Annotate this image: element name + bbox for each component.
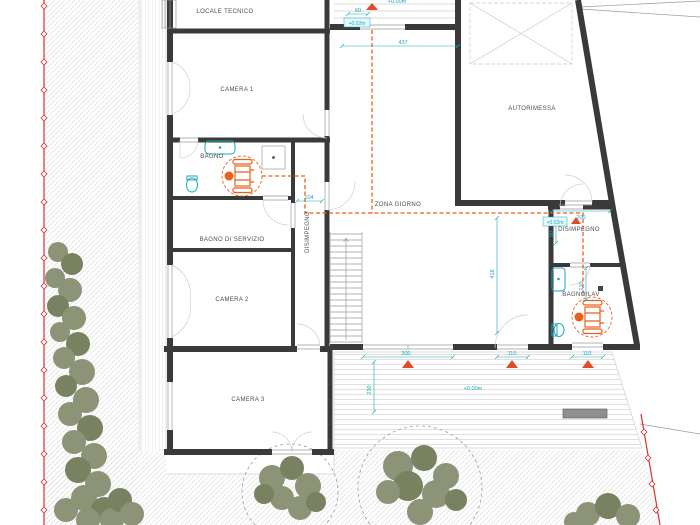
floor-plan-page: LOCALE TECNICO CAMERA 1 BAGNO BAGNO DI S… — [0, 0, 700, 525]
room-label-bagno: BAGNO — [200, 154, 223, 160]
level-tag-terrace: +0.00m — [464, 386, 483, 392]
garage-cross-marking — [470, 3, 572, 64]
terrace-step — [563, 409, 607, 418]
dim-terrace-window-2: 110 — [583, 351, 592, 357]
accessibility-path — [262, 30, 583, 296]
room-label-bagno-di-servizio: BAGNO DI SERVIZIO — [200, 237, 265, 243]
dim-living-width: 437 — [398, 40, 407, 46]
room-label-zona-giorno: ZONA GIORNO — [375, 202, 421, 208]
level-tag-top: +0.00m — [388, 0, 407, 5]
terrace-deck — [334, 352, 642, 448]
dim-terrace-door: 300 — [401, 351, 410, 357]
room-label-camera-2: CAMERA 2 — [215, 297, 248, 303]
room-label-autorimessa: AUTORIMESSA — [508, 106, 555, 112]
floor-plan-canvas: LOCALE TECNICO CAMERA 1 BAGNO BAGNO DI S… — [0, 0, 700, 525]
room-label-camera-3: CAMERA 3 — [231, 397, 264, 403]
stairs — [330, 232, 362, 343]
room-label-disimpegno-hall: DISIMPEGNO — [305, 211, 311, 253]
dim-living-depth: 418 — [490, 269, 496, 278]
dim-bagno-lav-width: 120 — [579, 281, 585, 290]
dim-disimpegno-width: 50 — [549, 231, 555, 237]
drain — [598, 286, 603, 291]
dim-garage-opening: 200 — [576, 215, 585, 221]
dim-terrace-depth: 230 — [367, 385, 373, 394]
room-label-camera-1: CAMERA 1 — [220, 87, 253, 93]
dim-terrace-window-1: 110 — [508, 351, 517, 357]
room-label-bagno-lav: BAGNO/LAV — [562, 292, 599, 298]
dim-entry-door: 60 — [355, 8, 361, 14]
level-tag-landing: +0.02m — [547, 220, 564, 226]
wheelchair-symbol-bagno-lav — [572, 297, 612, 337]
wheelchair-symbol-bagno — [222, 156, 262, 196]
toilet-bagno-lav — [554, 324, 564, 337]
room-label-locale-tecnico: LOCALE TECNICO — [196, 9, 253, 15]
room-label-disimpegno: DISIMPEGNO — [558, 227, 600, 233]
level-tag-entry: +0.02m — [349, 21, 366, 27]
dim-hall-opening: 104 — [304, 195, 313, 201]
